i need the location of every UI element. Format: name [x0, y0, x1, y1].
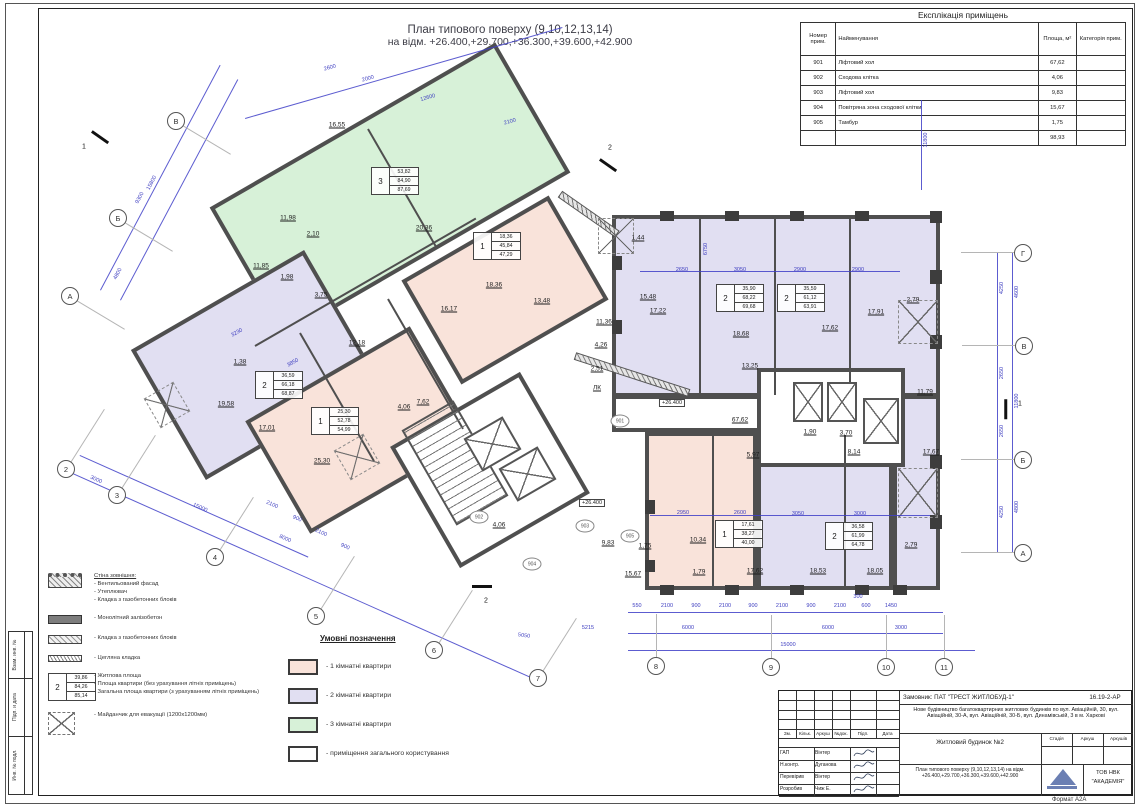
apartment-areas: 53,8284,9087,69 [390, 168, 418, 194]
wall-legend-line: - Вентильований фасад [94, 580, 177, 588]
dimension-label: 2900 [794, 267, 806, 273]
room-number-marker: 905 [621, 530, 640, 543]
dimension-label: 900 [691, 603, 700, 609]
room-number-marker: 901 [611, 415, 630, 428]
company-logo-triangle [1050, 769, 1076, 785]
apartment-areas: 17,6138,2740,00 [734, 521, 762, 547]
room-area-label: 19,58 [218, 401, 234, 408]
dimension-label: 3000 [89, 475, 103, 485]
axis-leader-line [117, 218, 173, 252]
structural-column [855, 211, 869, 221]
room-area-label: 11,98 [280, 215, 296, 222]
apartment-rooms-count: 3 [372, 168, 390, 194]
dimension-line [628, 650, 975, 651]
room-area-label: 18,05 [867, 568, 883, 575]
evacuation-pad [898, 300, 938, 344]
dimension-label: 9300 [134, 191, 145, 205]
wall-legend-line: - Кладка з газобетонних блоків [94, 634, 177, 642]
frame-strip-label: Инв. № подл. [12, 745, 18, 785]
color-legend-item: - 1 кімнатні квартири [288, 659, 498, 675]
axis-marker: 3 [108, 486, 126, 504]
wall-legend-item: - Цегляна кладка [48, 654, 293, 662]
structural-column [930, 455, 942, 469]
apartment-area-value: 87,69 [390, 186, 418, 194]
dimension-label: 300 [853, 594, 862, 600]
room-area-label: 9,83 [602, 540, 615, 547]
axis-marker: Б [1014, 451, 1032, 469]
company-logo [1047, 767, 1079, 793]
room-area-label: 7,62 [417, 399, 430, 406]
title-block-line [779, 710, 899, 711]
format-label: Формат А2А [1052, 797, 1086, 803]
company-logo-base [1047, 786, 1077, 789]
title-block-text: Підп. [850, 731, 876, 736]
dimension-label: 6000 [822, 625, 834, 631]
dimension-label: 15000 [192, 502, 208, 514]
axis-marker: Г [1014, 244, 1032, 262]
section-mark-label: 1 [1018, 401, 1022, 408]
axis-marker: А [61, 287, 79, 305]
signature-scribble [853, 785, 875, 796]
signature-scribble [853, 773, 875, 784]
room-area-label: 2,79 [905, 542, 918, 549]
apartment-area-value: 36,59 [274, 372, 302, 381]
axis-marker: 4 [206, 548, 224, 566]
structural-column [660, 211, 674, 221]
wall-legend-item: - Майданчик для евакуації (1200х1200мм) [48, 711, 293, 735]
dimension-label: 4800 [112, 267, 123, 281]
title-block-line [876, 748, 877, 796]
apartment-area-value: 84,90 [390, 177, 418, 186]
wall-legend-text: - Майданчик для евакуації (1200х1200мм) [94, 711, 207, 719]
apartment-area-value: 66,18 [274, 381, 302, 390]
room-area-label: 2,79 [907, 297, 920, 304]
room-area-label: 15,67 [625, 571, 641, 578]
elevator-shaft [863, 398, 899, 444]
wall-legend-line: - Цегляна кладка [94, 654, 140, 662]
apartment-area-value: 18,36 [492, 233, 520, 242]
apartment-area-value: 84,26 [67, 683, 95, 692]
axis-leader-line [215, 497, 254, 558]
signature-scribble [853, 761, 875, 772]
axis-leader-line [175, 121, 231, 155]
apartment-area-value: 53,82 [390, 168, 418, 177]
room-area-label: 3,75 [315, 292, 328, 299]
structural-column [660, 585, 674, 595]
elevator-shaft [793, 382, 823, 422]
dimension-label: 2950 [677, 510, 689, 516]
axis-marker: 10 [877, 658, 895, 676]
title-block-text: Н.контр. [780, 762, 814, 768]
evacuation-pad [898, 468, 938, 518]
axis-leader-line [66, 409, 105, 470]
dimension-label: 550 [632, 603, 641, 609]
title-block-line [779, 760, 899, 761]
title-block-text: ГАП [780, 750, 814, 756]
room-area-label: 2,51 [591, 366, 604, 373]
structural-column [725, 211, 739, 221]
section-mark [91, 130, 109, 144]
drawing-sheet: План типового поверху (9,10,12,13,14) на… [0, 0, 1140, 808]
wall-legend-text: - Монолітний залізобетон [94, 614, 162, 622]
dimension-line [100, 65, 221, 291]
apartment-rooms-count: 1 [716, 521, 734, 547]
wall-legend-line: - Площа квартири (без урахування літніх … [94, 680, 259, 688]
structural-column [790, 211, 804, 221]
apartment-areas: 36,5861,9964,78 [844, 523, 872, 549]
title-block-text: Перевірив [780, 774, 814, 780]
wall-legend-text: - Кладка з газобетонних блоків [94, 634, 177, 642]
room-area-label: 1,90 [804, 429, 817, 436]
wall-legend-text: - Житлова площа- Площа квартири (без ура… [94, 672, 259, 696]
structural-column [645, 500, 655, 514]
wall-legend-line: - Кладка з газобетонних блоків [94, 596, 177, 604]
frame-strip-label: Взам. инв. № [12, 635, 18, 675]
wall-legend-line: - Загальна площа квартири (з урахуванням… [94, 688, 259, 696]
room-area-label: 18,53 [810, 568, 826, 575]
title-block-line [779, 772, 899, 773]
apartment-rooms-count: 1 [312, 408, 330, 434]
title-block-text: Аркуш [814, 731, 832, 736]
room-area-label: 13,25 [742, 363, 758, 370]
color-legend-item: - 3 кімнатні квартири [288, 717, 498, 733]
title-block-line [779, 700, 899, 701]
axis-marker: 9 [762, 658, 780, 676]
axis-marker: В [167, 112, 185, 130]
apartment-area-value: 61,12 [796, 294, 824, 303]
room-area-label: 10,34 [690, 537, 706, 544]
brick-symbol [48, 655, 82, 662]
room-area-label: 16,17 [441, 306, 457, 313]
apartment-area-value: 17,61 [734, 521, 762, 530]
room-area-label: 25,30 [314, 458, 330, 465]
dimension-label: 3000 [895, 625, 907, 631]
title-block-text: Зм. [779, 731, 796, 736]
wall-legend-symbol [48, 711, 94, 735]
apartment-areas: 25,3052,7854,99 [330, 408, 358, 434]
dimension-label: 2650 [676, 267, 688, 273]
wall-legend-text: - Цегляна кладка [94, 654, 140, 662]
apartment-tag: 353,8284,9087,69 [371, 167, 419, 195]
dimension-label: 900 [806, 603, 815, 609]
apartment-rooms-count: 2 [49, 674, 67, 700]
room-area-label: 8,14 [848, 449, 861, 456]
partition-wall [774, 219, 776, 395]
dimension-line [1012, 253, 1013, 553]
title-block-line [1041, 746, 1133, 747]
title-block-text: Дуганова [815, 762, 849, 768]
room-area-label: 16,55 [329, 122, 345, 129]
elevation-marker: +26.400 [579, 499, 605, 507]
room-area-label: 4,06 [493, 522, 506, 529]
evacuation-pad-symbol [48, 712, 75, 735]
structural-column [790, 585, 804, 595]
dimension-label: 4250 [999, 506, 1005, 518]
color-legend-title: Умовні позначення [320, 634, 498, 643]
dimension-label: 2650 [999, 367, 1005, 379]
apartment-tag: 117,6138,2740,00 [715, 520, 763, 548]
dimension-label: 4600 [1014, 286, 1020, 298]
apartment-tag: 118,3645,8447,29 [473, 232, 521, 260]
title-block-text: №док. [832, 731, 850, 736]
section-mark [472, 585, 492, 588]
section-mark [599, 158, 617, 172]
title-block-line [1041, 764, 1133, 765]
apartment-tag: 235,9068,2269,68 [716, 284, 764, 312]
wall-legend-item-title: Стіна зовнішня: [94, 572, 177, 580]
title-block-line [779, 784, 899, 785]
wall-legend-line: - Монолітний залізобетон [94, 614, 162, 622]
room-area-label: 67,62 [732, 417, 748, 424]
dimension-label: 6000 [682, 625, 694, 631]
apartment-tag: 236,5861,9964,78 [825, 522, 873, 550]
color-legend: Умовні позначення - 1 кімнатні квартири-… [288, 634, 498, 775]
apartment-tag: 236,5966,1868,87 [255, 371, 303, 399]
room-area-label: 17,22 [650, 308, 666, 315]
wall-legend-symbol [48, 614, 94, 624]
elevator-shaft [827, 382, 857, 422]
partition-wall [699, 219, 701, 395]
axis-marker: 7 [529, 669, 547, 687]
structural-column [893, 585, 907, 595]
frame-strip-divider [24, 632, 25, 794]
room-number-marker: 903 [576, 520, 595, 533]
title-block-line [779, 738, 899, 739]
room-area-label: 4,26 [595, 342, 608, 349]
wall-legend-text: Стіна зовнішня:- Вентильований фасад- Ут… [94, 572, 177, 604]
color-swatch [288, 746, 318, 762]
frame-left-strip: Взам. инв. №Підп. и датаИнв. № подл. [8, 631, 33, 795]
title-block-line [899, 691, 900, 796]
section-mark-label: 2 [608, 145, 612, 152]
wall-legend-line: - Утеплювач [94, 588, 177, 596]
title-block-text: Розробив [780, 786, 814, 792]
dimension-label: 3050 [734, 267, 746, 273]
dimension-line [628, 633, 943, 634]
frame-strip-label: Підп. и дата [12, 687, 18, 727]
dimension-label: 2100 [776, 603, 788, 609]
room-area-label: 1,75 [639, 543, 652, 550]
title-block-line [899, 704, 1133, 705]
dimension-line [628, 612, 943, 613]
evacuation-pad [598, 218, 634, 254]
color-legend-item: - 2 кімнатні квартири [288, 688, 498, 704]
dimension-label: 5050 [518, 632, 531, 640]
title-block-text: "АКАДЕМІЯ" [1085, 779, 1131, 785]
color-legend-label: - 3 кімнатні квартири [326, 721, 391, 730]
axis-marker: В [1015, 337, 1033, 355]
apartment-area-value: 63,91 [796, 303, 824, 311]
wall-legend-item: - Монолітний залізобетон [48, 614, 293, 624]
room-area-label: 17,01 [259, 425, 275, 432]
title-block-text: 16.19-2-АР [1079, 694, 1131, 701]
axis-leader-line [69, 296, 125, 330]
apartment-areas: 39,8684,2685,14 [67, 674, 95, 700]
apartment-rooms-count: 2 [778, 285, 796, 311]
partition-wall [849, 219, 851, 395]
room-area-label: 2,10 [307, 231, 320, 238]
room-area-label: 1,38 [234, 359, 247, 366]
structural-column [930, 211, 942, 223]
room-area-label: 12,18 [349, 340, 365, 347]
room-area-label: 11,79 [917, 389, 933, 396]
apartment-area-value: 47,29 [492, 251, 520, 259]
dimension-label: 2900 [852, 267, 864, 273]
axis-marker: 5 [307, 607, 325, 625]
room-area-label: 20,36 [416, 225, 432, 232]
concrete-symbol [48, 615, 82, 624]
dimension-label: 900 [340, 542, 351, 551]
apartment-area-value: 45,84 [492, 242, 520, 251]
apartment-rooms-count: 2 [826, 523, 844, 549]
dimension-label: 2600 [323, 63, 336, 72]
dimension-label: 8000 [278, 534, 292, 544]
title-block-line [779, 719, 899, 720]
apartment-rooms-count: 2 [256, 372, 274, 398]
apartment-rooms-count: 2 [717, 285, 735, 311]
wall-legend-item: - Кладка з газобетонних блоків [48, 634, 293, 644]
room-area-label: 11,36 [596, 319, 612, 326]
dimension-label: 3050 [792, 511, 804, 517]
room-area-label: 17,62 [822, 325, 838, 332]
dimension-label: 4250 [999, 282, 1005, 294]
title-block-text: Нове будівництво багатоквартирних житлов… [901, 707, 1131, 719]
wall-legend-line: - Житлова площа [94, 672, 259, 680]
axis-marker: Б [109, 209, 127, 227]
apartment-areas: 35,5961,1263,91 [796, 285, 824, 311]
apartment-area-value: 35,59 [796, 285, 824, 294]
dimension-label: 2600 [734, 510, 746, 516]
apartment-area-value: 36,58 [844, 523, 872, 532]
wall-legend-item: 239,8684,2685,14- Житлова площа- Площа к… [48, 672, 293, 701]
dimension-label: 2100 [314, 528, 328, 538]
apartment-area-value: 38,27 [734, 530, 762, 539]
title-block-text: Вінтер [815, 750, 849, 756]
apartment-area-value: 85,14 [67, 692, 95, 700]
apartment-area-value: 68,87 [274, 390, 302, 398]
title-block-text: Аркушів [1103, 736, 1134, 741]
apartment-area-value: 68,22 [735, 294, 763, 303]
section-mark [1005, 399, 1008, 419]
room-number-marker: 904 [523, 558, 542, 571]
apartment-area-value: 69,68 [735, 303, 763, 311]
dimension-line [997, 253, 998, 553]
structural-column [645, 560, 655, 572]
apartment-area-value: 35,90 [735, 285, 763, 294]
room-area-label: 17,91 [868, 309, 884, 316]
axis-leader-line [538, 618, 577, 679]
wall-legend-item: Стіна зовнішня:- Вентильований фасад- Ут… [48, 572, 293, 604]
apartment-tag: 125,3052,7854,99 [311, 407, 359, 435]
title-block-text: Чиж Е. [815, 786, 849, 792]
room-area-label: 18,36 [486, 282, 502, 289]
room-area-label: 15,48 [640, 294, 656, 301]
structural-column [725, 585, 739, 595]
partition-wall [844, 435, 846, 589]
section-mark-label: 2 [484, 598, 488, 605]
apartment-rooms-count: 1 [474, 233, 492, 259]
title-block-text: Аркуш [1072, 736, 1103, 741]
axis-leader-line [316, 556, 355, 617]
apartment-area-value: 39,86 [67, 674, 95, 683]
color-legend-label: - приміщення загального користування [326, 750, 449, 759]
color-swatch [288, 688, 318, 704]
title-block-line [814, 748, 815, 796]
apartment-areas: 18,3645,8447,29 [492, 233, 520, 259]
title-block-text: Кільк. [796, 731, 814, 736]
apartment-area-value: 64,78 [844, 541, 872, 549]
dimension-label: 2100 [265, 500, 279, 510]
axis-marker: 2 [57, 460, 75, 478]
structural-column [930, 270, 942, 284]
wall-legend-line: - Майданчик для евакуації (1200х1200мм) [94, 711, 207, 719]
wall-legend-symbol [48, 572, 94, 588]
title-block-line [850, 748, 851, 796]
axis-marker: 8 [647, 657, 665, 675]
partition-wall [712, 435, 714, 589]
dimension-label: 6750 [703, 243, 709, 255]
dimension-line [921, 100, 922, 190]
axis-marker: 11 [935, 658, 953, 676]
dimension-line [650, 515, 930, 516]
dimension-label: 4800 [1014, 501, 1020, 513]
room-area-label: 3,70 [840, 430, 853, 437]
elevation-marker: +26.400 [659, 399, 685, 407]
room-number-marker: 902 [470, 511, 489, 524]
title-block-text: Замовник: ПАТ "ТРЕСТ ЖИТЛОБУД-1" [903, 694, 1073, 701]
apartment-area-value: 61,99 [844, 532, 872, 541]
room-area-label: 17,67 [923, 449, 939, 456]
dimension-label: 3000 [854, 511, 866, 517]
apartment-areas: 35,9068,2269,68 [735, 285, 763, 311]
title-block-line [899, 733, 1133, 734]
title-block-line [779, 747, 899, 748]
dimension-label: 11800 [923, 133, 929, 148]
color-swatch [288, 717, 318, 733]
room-area-label: 17,62 [747, 568, 763, 575]
apartment-area-value: 25,30 [330, 408, 358, 417]
room-area-label: ЛК [593, 385, 601, 392]
blocks-symbol [48, 635, 82, 644]
title-block-text: Вінтер [815, 774, 849, 780]
apartment-areas: 36,5966,1868,87 [274, 372, 302, 398]
structural-column [612, 320, 622, 334]
title-block-text: ТОВ НВК [1085, 770, 1131, 776]
wall-legend-symbol [48, 654, 94, 662]
title-block-text: Житловий будинок №2 [903, 739, 1037, 746]
section-mark-label: 1 [82, 144, 86, 151]
room-area-label: 1,44 [632, 235, 645, 242]
wall-legend-symbol [48, 634, 94, 644]
color-legend-label: - 1 кімнатні квартири [326, 663, 391, 672]
title-block: Зм.Кільк.Аркуш№док.Підп.ДатаГАПВінтерН.к… [778, 690, 1132, 795]
dimension-label: 5215 [582, 625, 594, 631]
wall-legend: Стіна зовнішня:- Вентильований фасад- Ут… [48, 572, 293, 745]
title-block-line [779, 796, 899, 797]
color-legend-label: - 2 кімнатні квартири [326, 692, 391, 701]
room-area-label: 4,06 [398, 404, 411, 411]
room-area-label: 11,85 [253, 263, 269, 270]
title-block-text: Стадія [1041, 736, 1072, 741]
title-block-text: Дата [876, 731, 899, 736]
apartment-tag: 235,5961,1263,91 [777, 284, 825, 312]
apartment-area-value: 54,99 [330, 426, 358, 434]
axis-marker: А [1014, 544, 1032, 562]
signature-scribble [853, 749, 875, 760]
title-block-line [1083, 764, 1084, 796]
room-area-label: 1,79 [693, 569, 706, 576]
dimension-label: 2100 [661, 603, 673, 609]
